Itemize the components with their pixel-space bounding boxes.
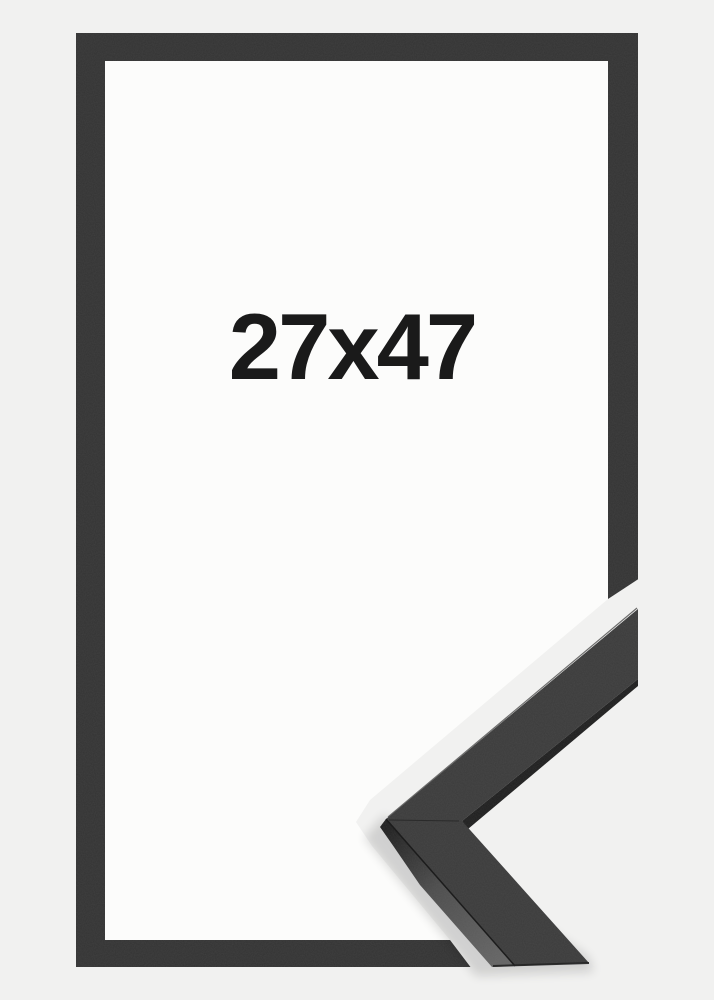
size-label: 27x47 xyxy=(229,294,475,399)
frame-product-canvas: 27x47 xyxy=(0,0,714,1000)
product-image: 27x47 xyxy=(0,0,714,1000)
